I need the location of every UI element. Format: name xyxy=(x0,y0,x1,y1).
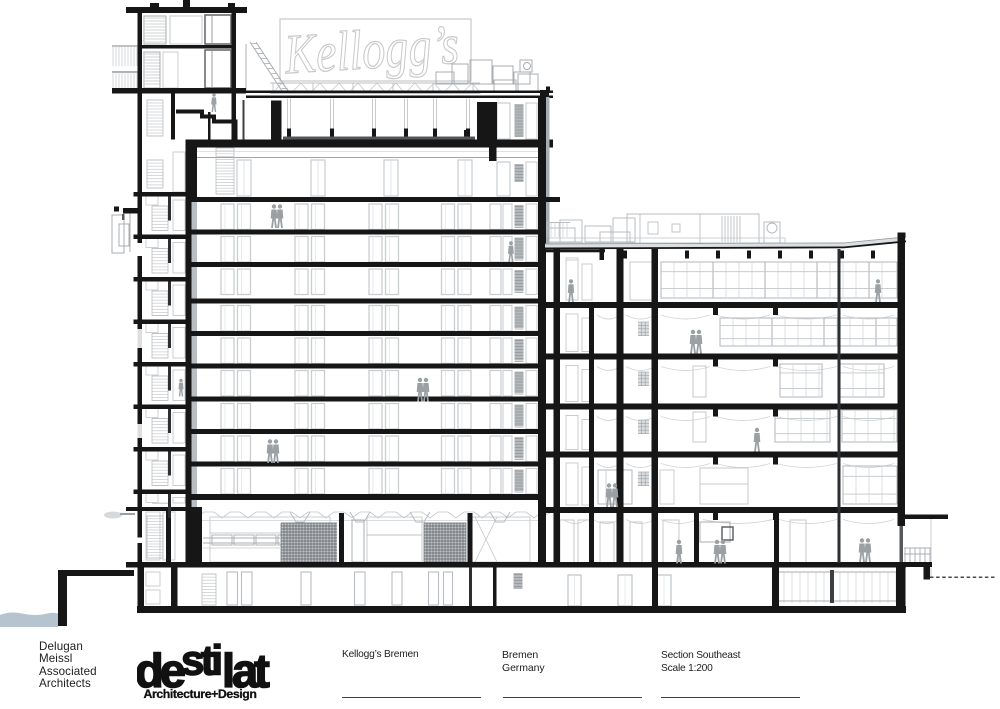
svg-text:Architecture+Design: Architecture+Design xyxy=(144,687,257,701)
svg-text:sti: sti xyxy=(181,637,220,684)
svg-text:Kellogg’s: Kellogg’s xyxy=(282,14,460,87)
